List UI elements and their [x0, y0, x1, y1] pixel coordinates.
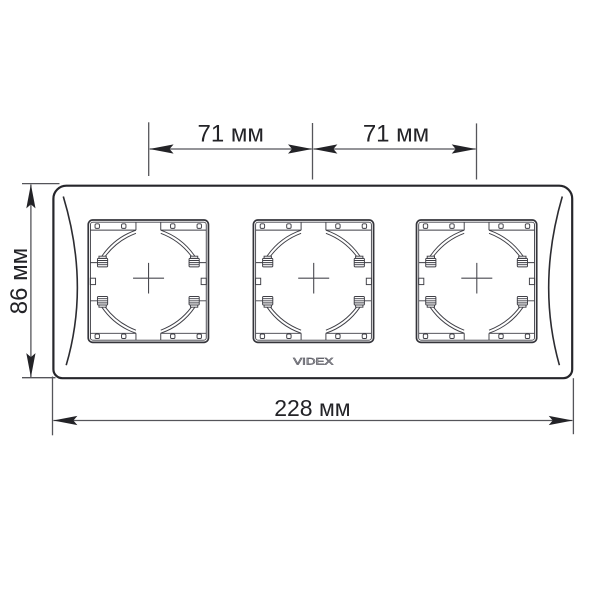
svg-text:228 мм: 228 мм [274, 395, 350, 421]
svg-text:71 мм: 71 мм [363, 121, 429, 148]
svg-text:VIDEX: VIDEX [293, 357, 333, 367]
svg-text:71 мм: 71 мм [198, 121, 264, 148]
svg-text:86 мм: 86 мм [6, 248, 33, 314]
